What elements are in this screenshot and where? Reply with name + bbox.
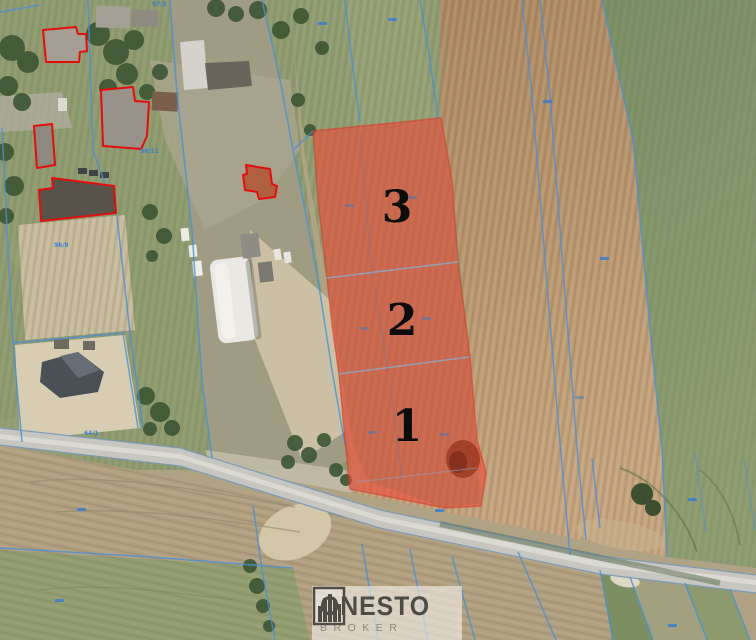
cadastral-tick xyxy=(543,100,552,103)
cadastral-ref-label: 98/11 xyxy=(140,149,159,155)
cadastral-tick xyxy=(318,22,327,25)
cadastral-ref-label: 97/5 xyxy=(152,2,167,8)
cadastral-tick xyxy=(408,196,417,199)
cadastral-tick xyxy=(388,18,397,21)
cadastral-tick xyxy=(55,599,64,602)
parcel-number-2: 2 xyxy=(387,299,418,343)
cadastral-tick xyxy=(345,204,354,207)
cadastral-tick xyxy=(360,327,369,330)
cadastral-ref-label: 64/1 xyxy=(84,431,99,437)
onesto-broker-logo: ONESTO BROKER xyxy=(312,586,462,640)
parcel-number-1: 1 xyxy=(392,405,423,449)
parcel-number-3: 3 xyxy=(382,186,413,230)
cadastral-tick xyxy=(368,431,377,434)
logo-name: ONESTO xyxy=(320,593,430,620)
map-scene xyxy=(0,0,756,640)
cadastral-tick xyxy=(575,396,584,399)
cadastral-tick xyxy=(435,509,444,512)
cadastral-ref-label: 96/9 xyxy=(54,243,69,249)
cadastral-tick xyxy=(422,317,431,320)
cadastral-tick xyxy=(668,624,677,627)
cadastral-tick xyxy=(440,433,449,436)
cadastral-tick xyxy=(600,257,609,260)
logo-text: ONESTO BROKER xyxy=(320,593,440,634)
aerial-cadastral-map: 3 2 1 97/5 98/11 96/9 64/1 ONESTO xyxy=(0,0,756,640)
cadastral-tick xyxy=(77,508,86,511)
cadastral-tick xyxy=(688,498,697,501)
